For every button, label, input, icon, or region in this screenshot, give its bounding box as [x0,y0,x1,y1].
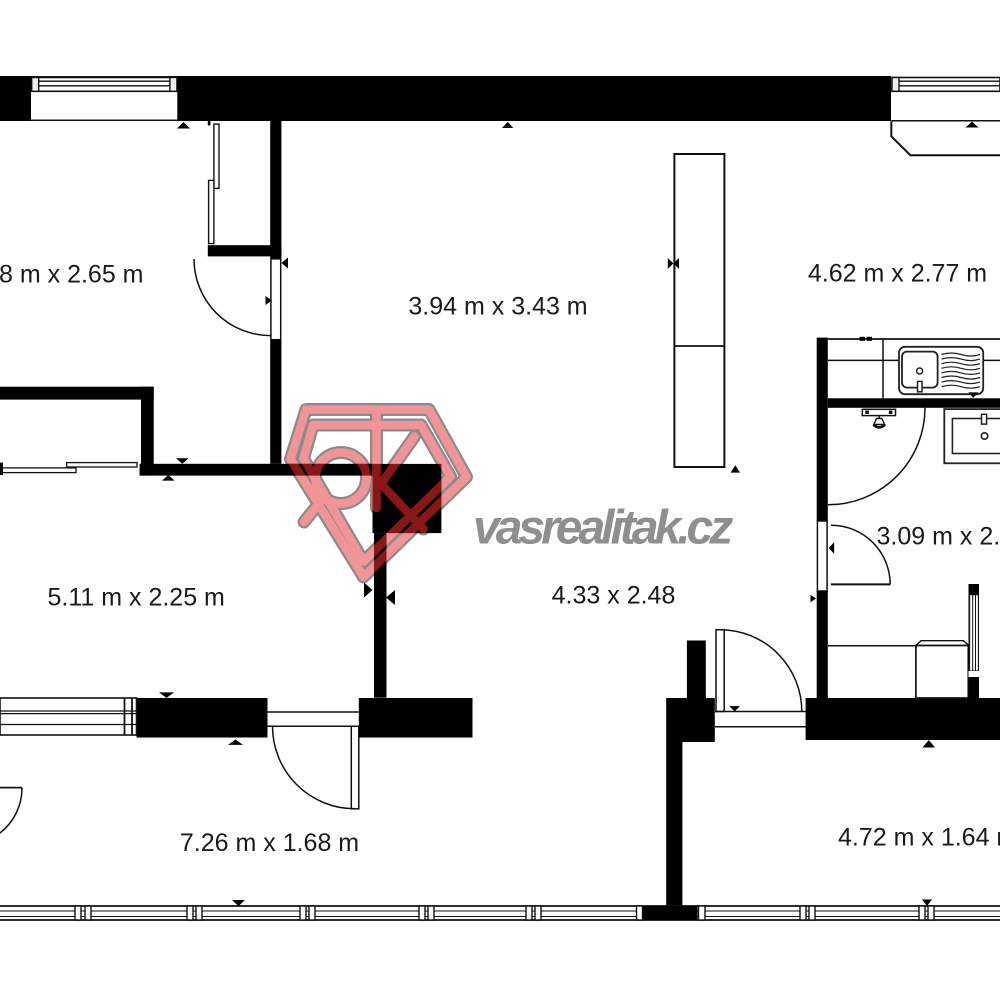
svg-text:8 m x 2.65 m: 8 m x 2.65 m [0,261,144,289]
svg-text:vasrealitak.cz: vasrealitak.cz [473,502,733,555]
svg-text:7.26 m x 1.68 m: 7.26 m x 1.68 m [180,829,359,857]
svg-text:3.94 m x 3.43 m: 3.94 m x 3.43 m [408,292,587,320]
svg-text:4.72 m x 1.64 m: 4.72 m x 1.64 m [838,824,1000,852]
svg-text:5.11 m x 2.25 m: 5.11 m x 2.25 m [47,584,224,612]
svg-text:3.09 m x 2.48: 3.09 m x 2.48 [877,523,1000,551]
svg-text:4.33 x 2.48: 4.33 x 2.48 [552,582,676,610]
svg-text:4.62 m x 2.77 m: 4.62 m x 2.77 m [808,260,987,288]
